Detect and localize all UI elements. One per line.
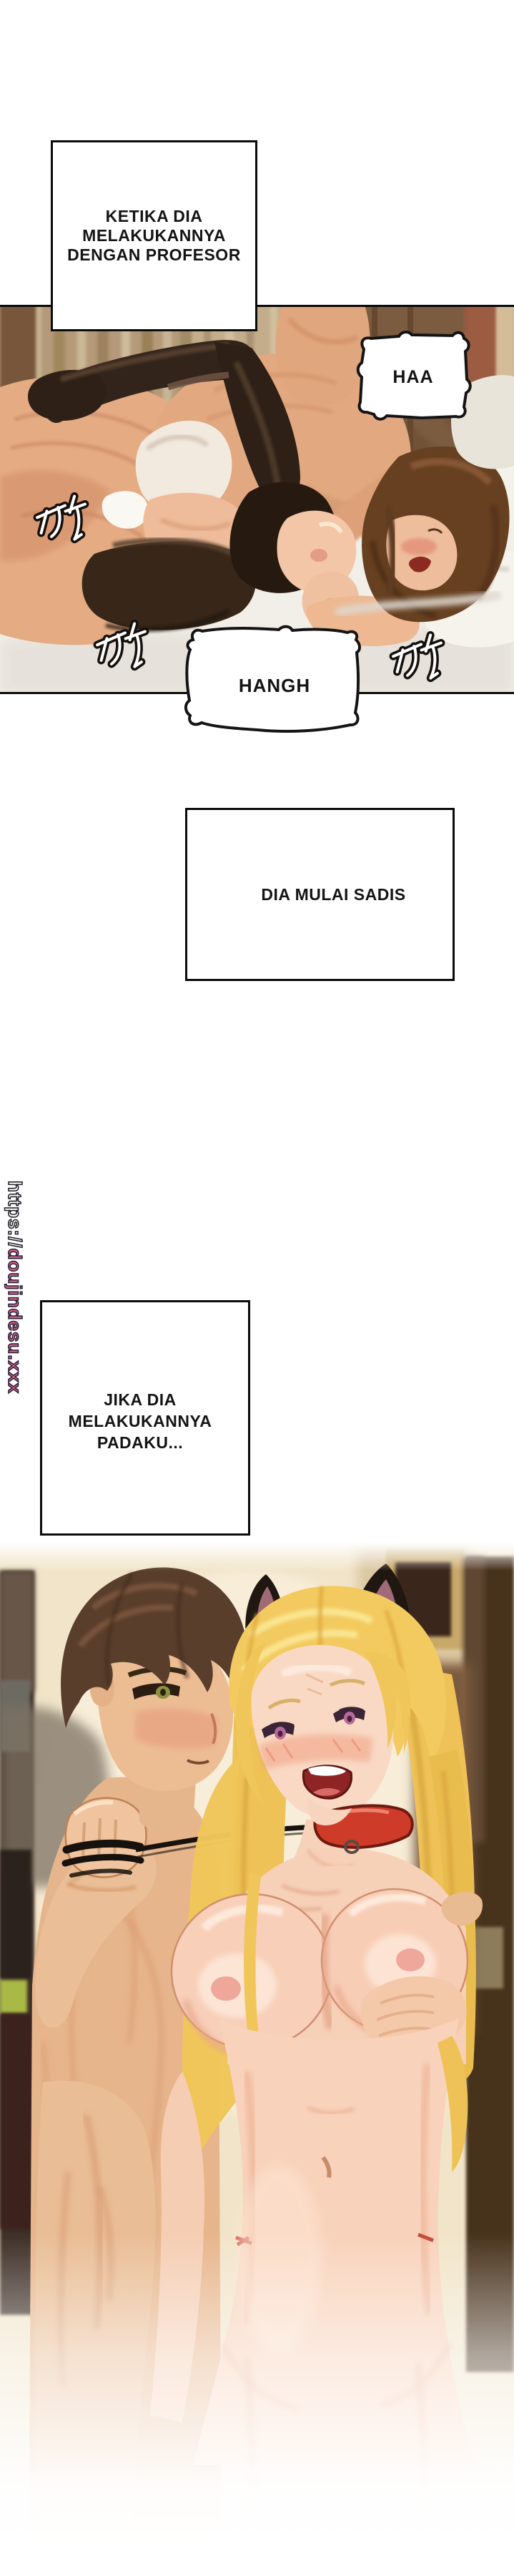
svg-text:HANGH: HANGH — [239, 675, 310, 696]
svg-text:HAA: HAA — [392, 367, 433, 387]
